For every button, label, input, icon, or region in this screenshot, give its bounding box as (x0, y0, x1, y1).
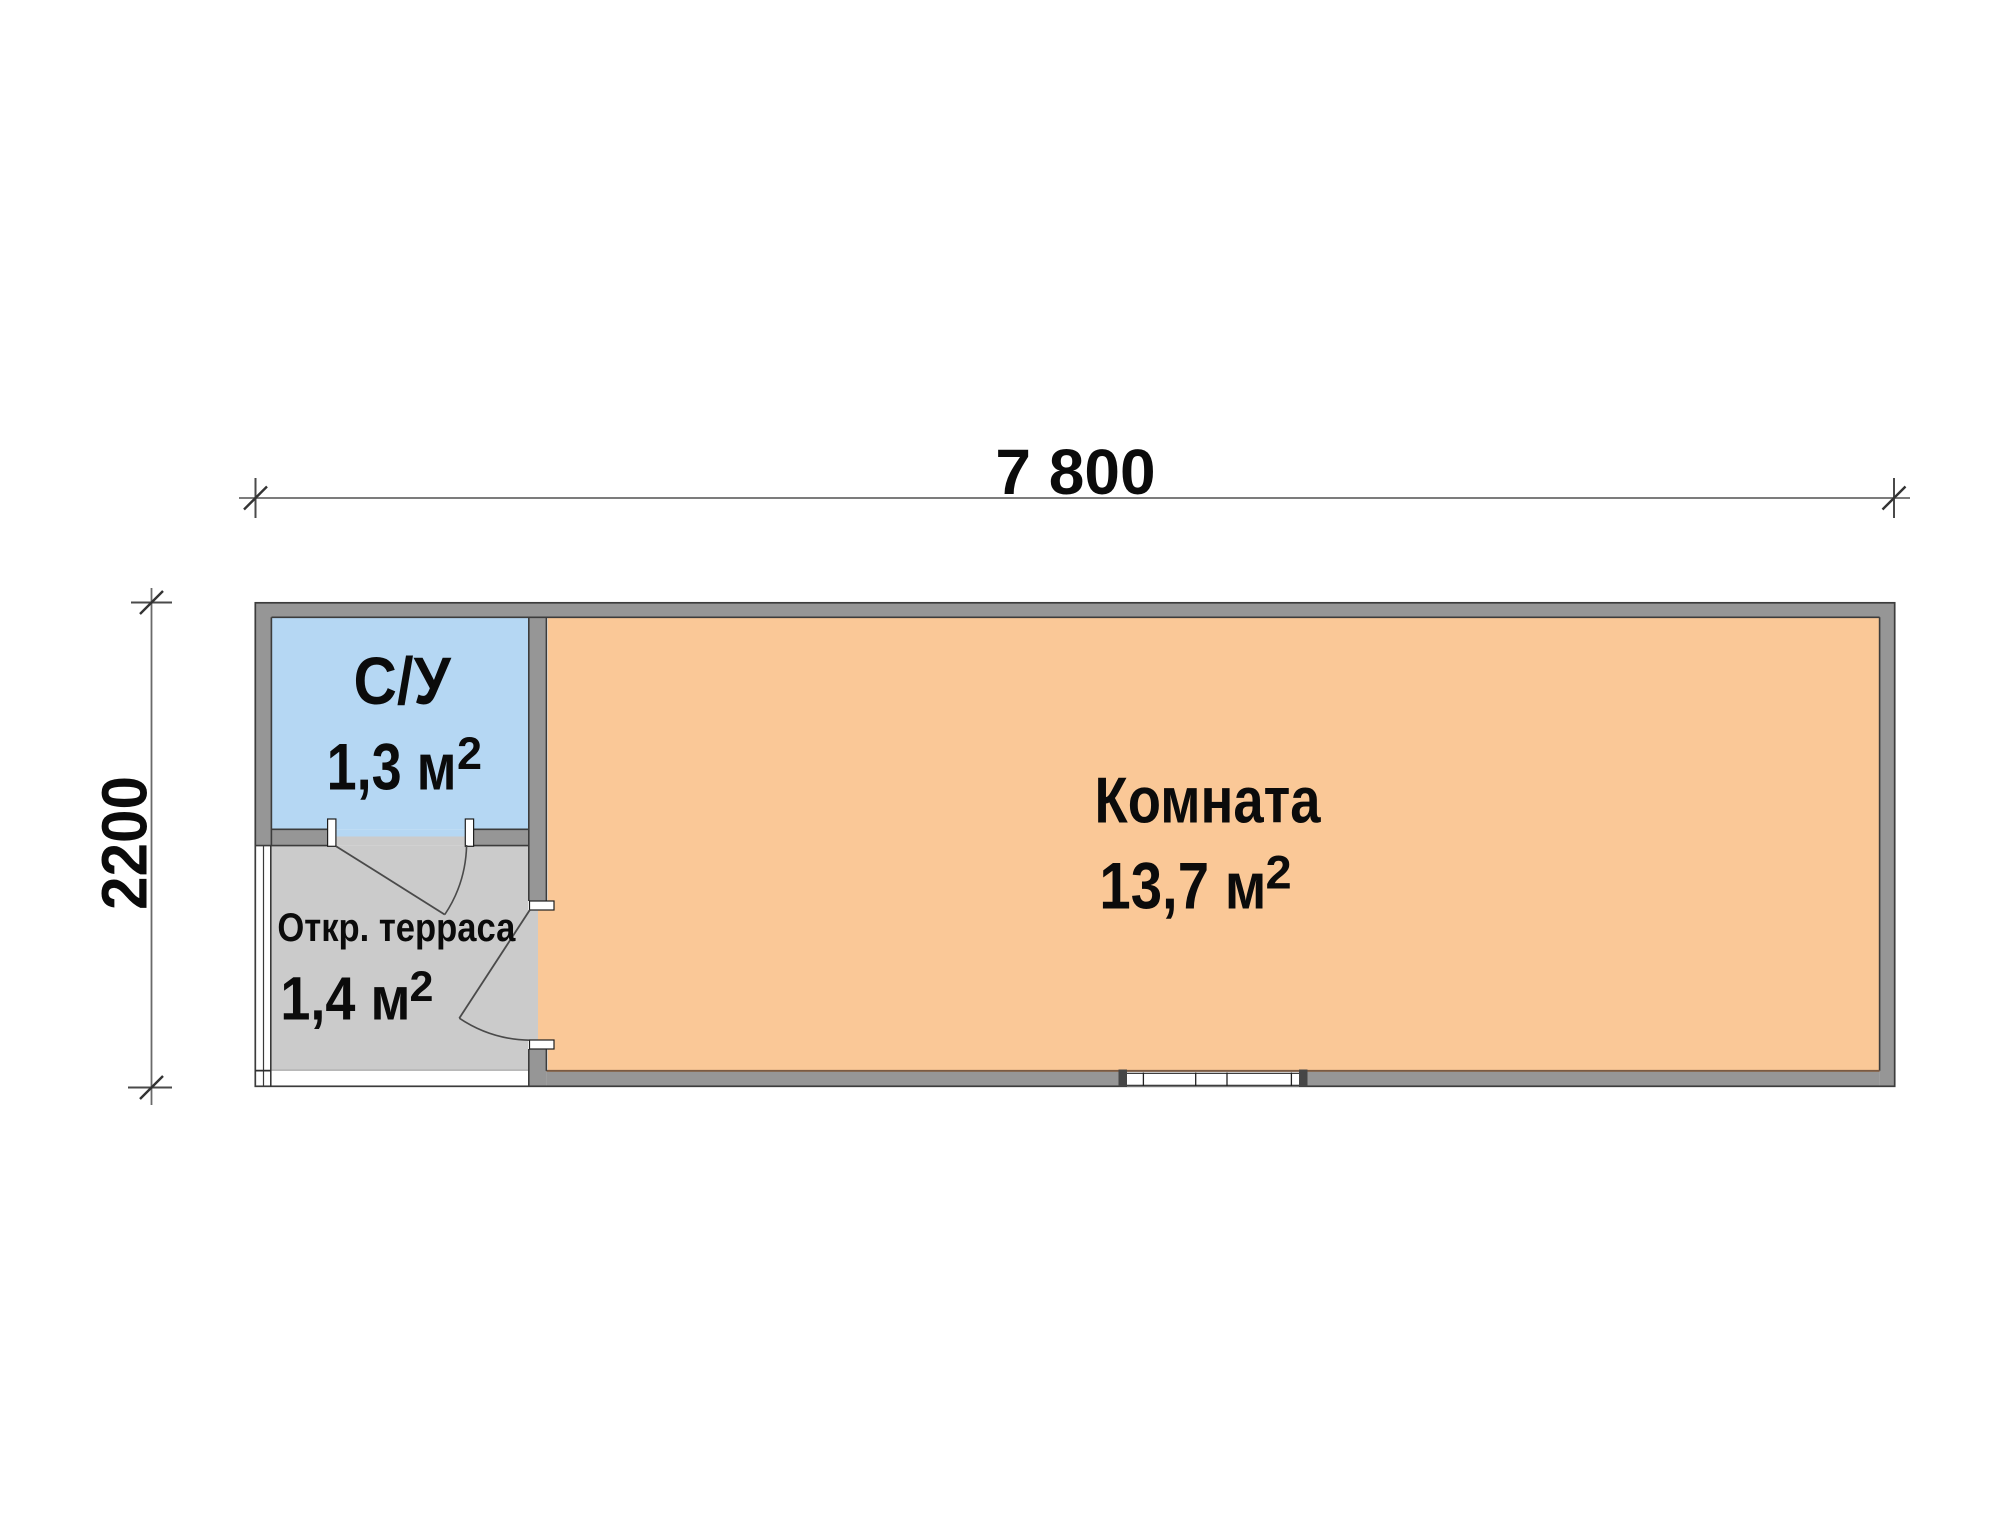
svg-text:Комната: Комната (1095, 765, 1322, 837)
svg-text:13,7 м: 13,7 м (1099, 848, 1266, 922)
svg-text:2200: 2200 (88, 776, 160, 910)
svg-text:2: 2 (457, 728, 482, 779)
svg-text:С/У: С/У (353, 644, 452, 719)
svg-text:2: 2 (410, 963, 434, 1011)
svg-text:1,4 м: 1,4 м (280, 964, 410, 1033)
svg-text:1,3 м: 1,3 м (327, 730, 457, 804)
svg-text:2: 2 (1266, 846, 1292, 899)
svg-text:7 800: 7 800 (995, 436, 1155, 508)
svg-text:Откр. терраса: Откр. терраса (277, 906, 516, 950)
